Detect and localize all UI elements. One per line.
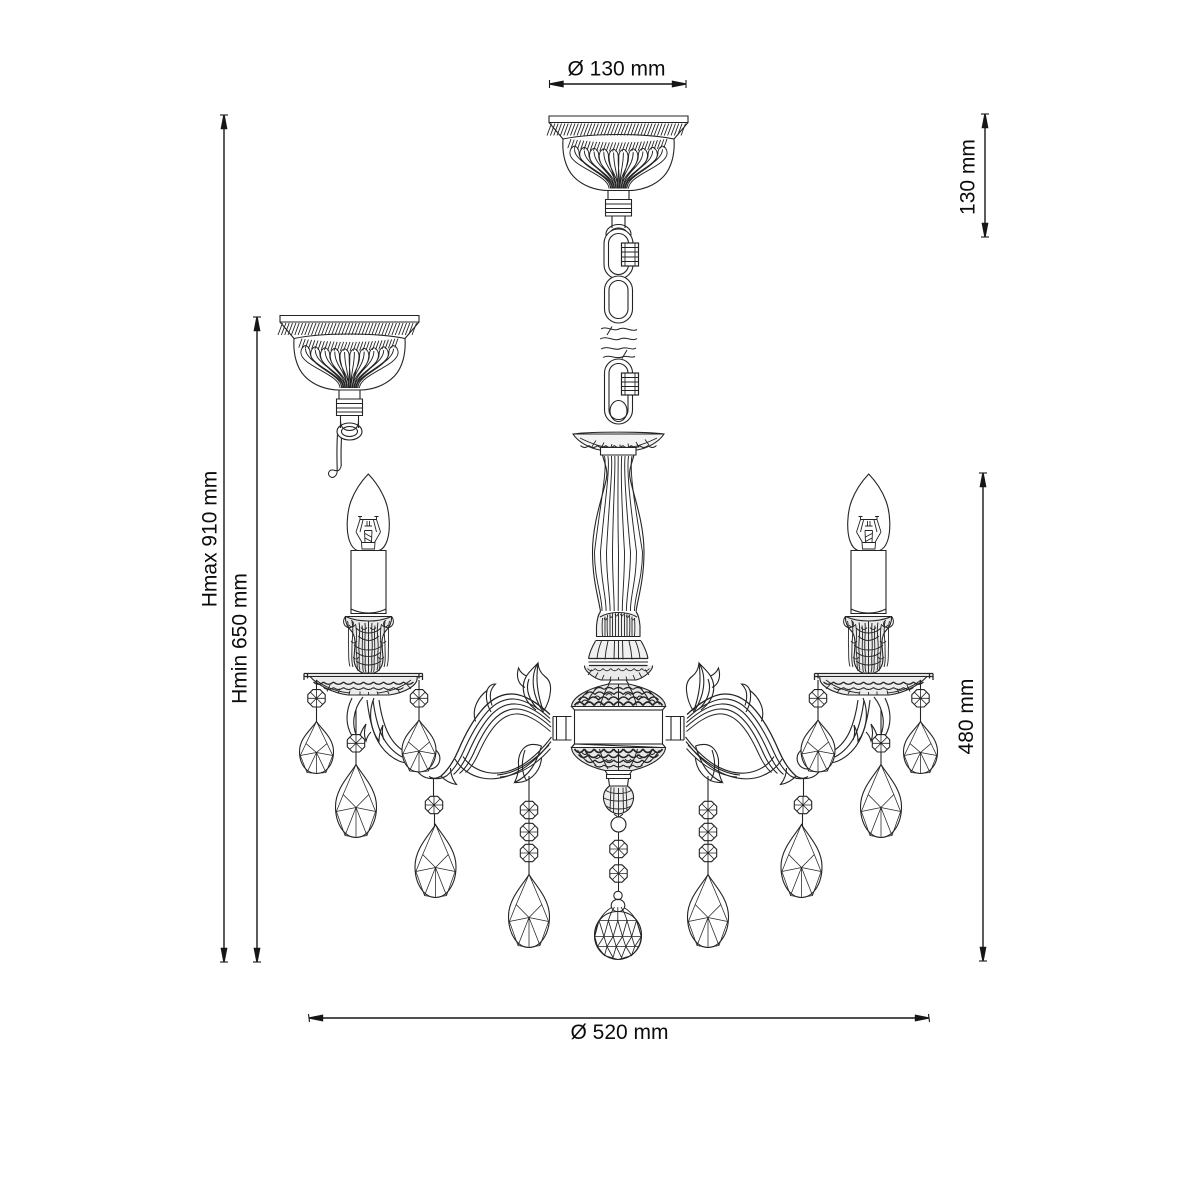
svg-text:Hmin 650 mm: Hmin 650 mm — [229, 573, 252, 704]
svg-text:130 mm: 130 mm — [957, 139, 980, 215]
svg-text:480 mm: 480 mm — [955, 679, 978, 755]
svg-text:Hmax 910 mm: Hmax 910 mm — [199, 471, 222, 608]
svg-text:Ø 130 mm: Ø 130 mm — [567, 58, 665, 81]
svg-text:Ø 520 mm: Ø 520 mm — [570, 1021, 668, 1044]
